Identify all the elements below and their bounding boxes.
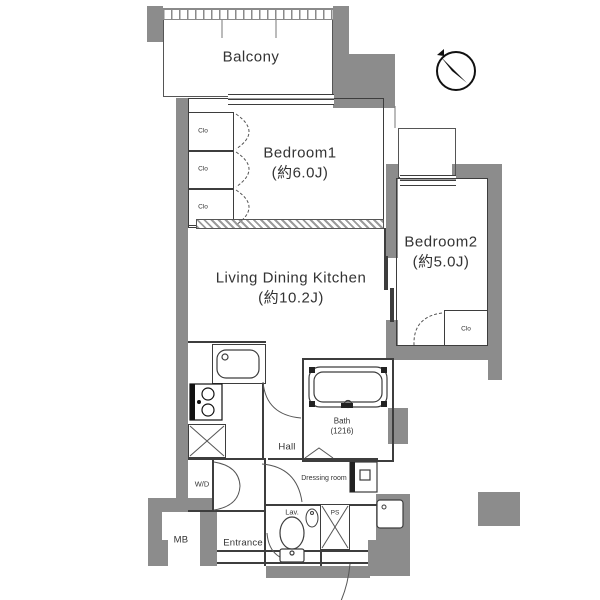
hall-closet-doors <box>214 462 240 510</box>
closet-door-arcs <box>236 114 442 345</box>
bathtub <box>309 367 387 408</box>
toilet <box>280 517 304 562</box>
floor-plan: Balcony Clo Clo Clo Bedroom1 (約6.0J) Bed… <box>0 0 600 600</box>
dressing-door-arc <box>262 464 302 502</box>
hand-basin <box>306 509 318 527</box>
washer-pan <box>350 462 377 492</box>
x-marks <box>190 426 348 548</box>
water-heater <box>377 500 403 528</box>
kitchen-sink <box>217 350 259 378</box>
ldk-hall-door-arc <box>263 382 301 418</box>
fixture-layer <box>0 0 600 600</box>
north-arrow-icon <box>437 49 475 90</box>
bath-folding-door <box>305 448 333 458</box>
stove <box>190 384 222 420</box>
balcony-partition-ticks <box>222 20 395 128</box>
door-arcs <box>240 382 350 600</box>
entrance-door-arc <box>240 564 350 600</box>
